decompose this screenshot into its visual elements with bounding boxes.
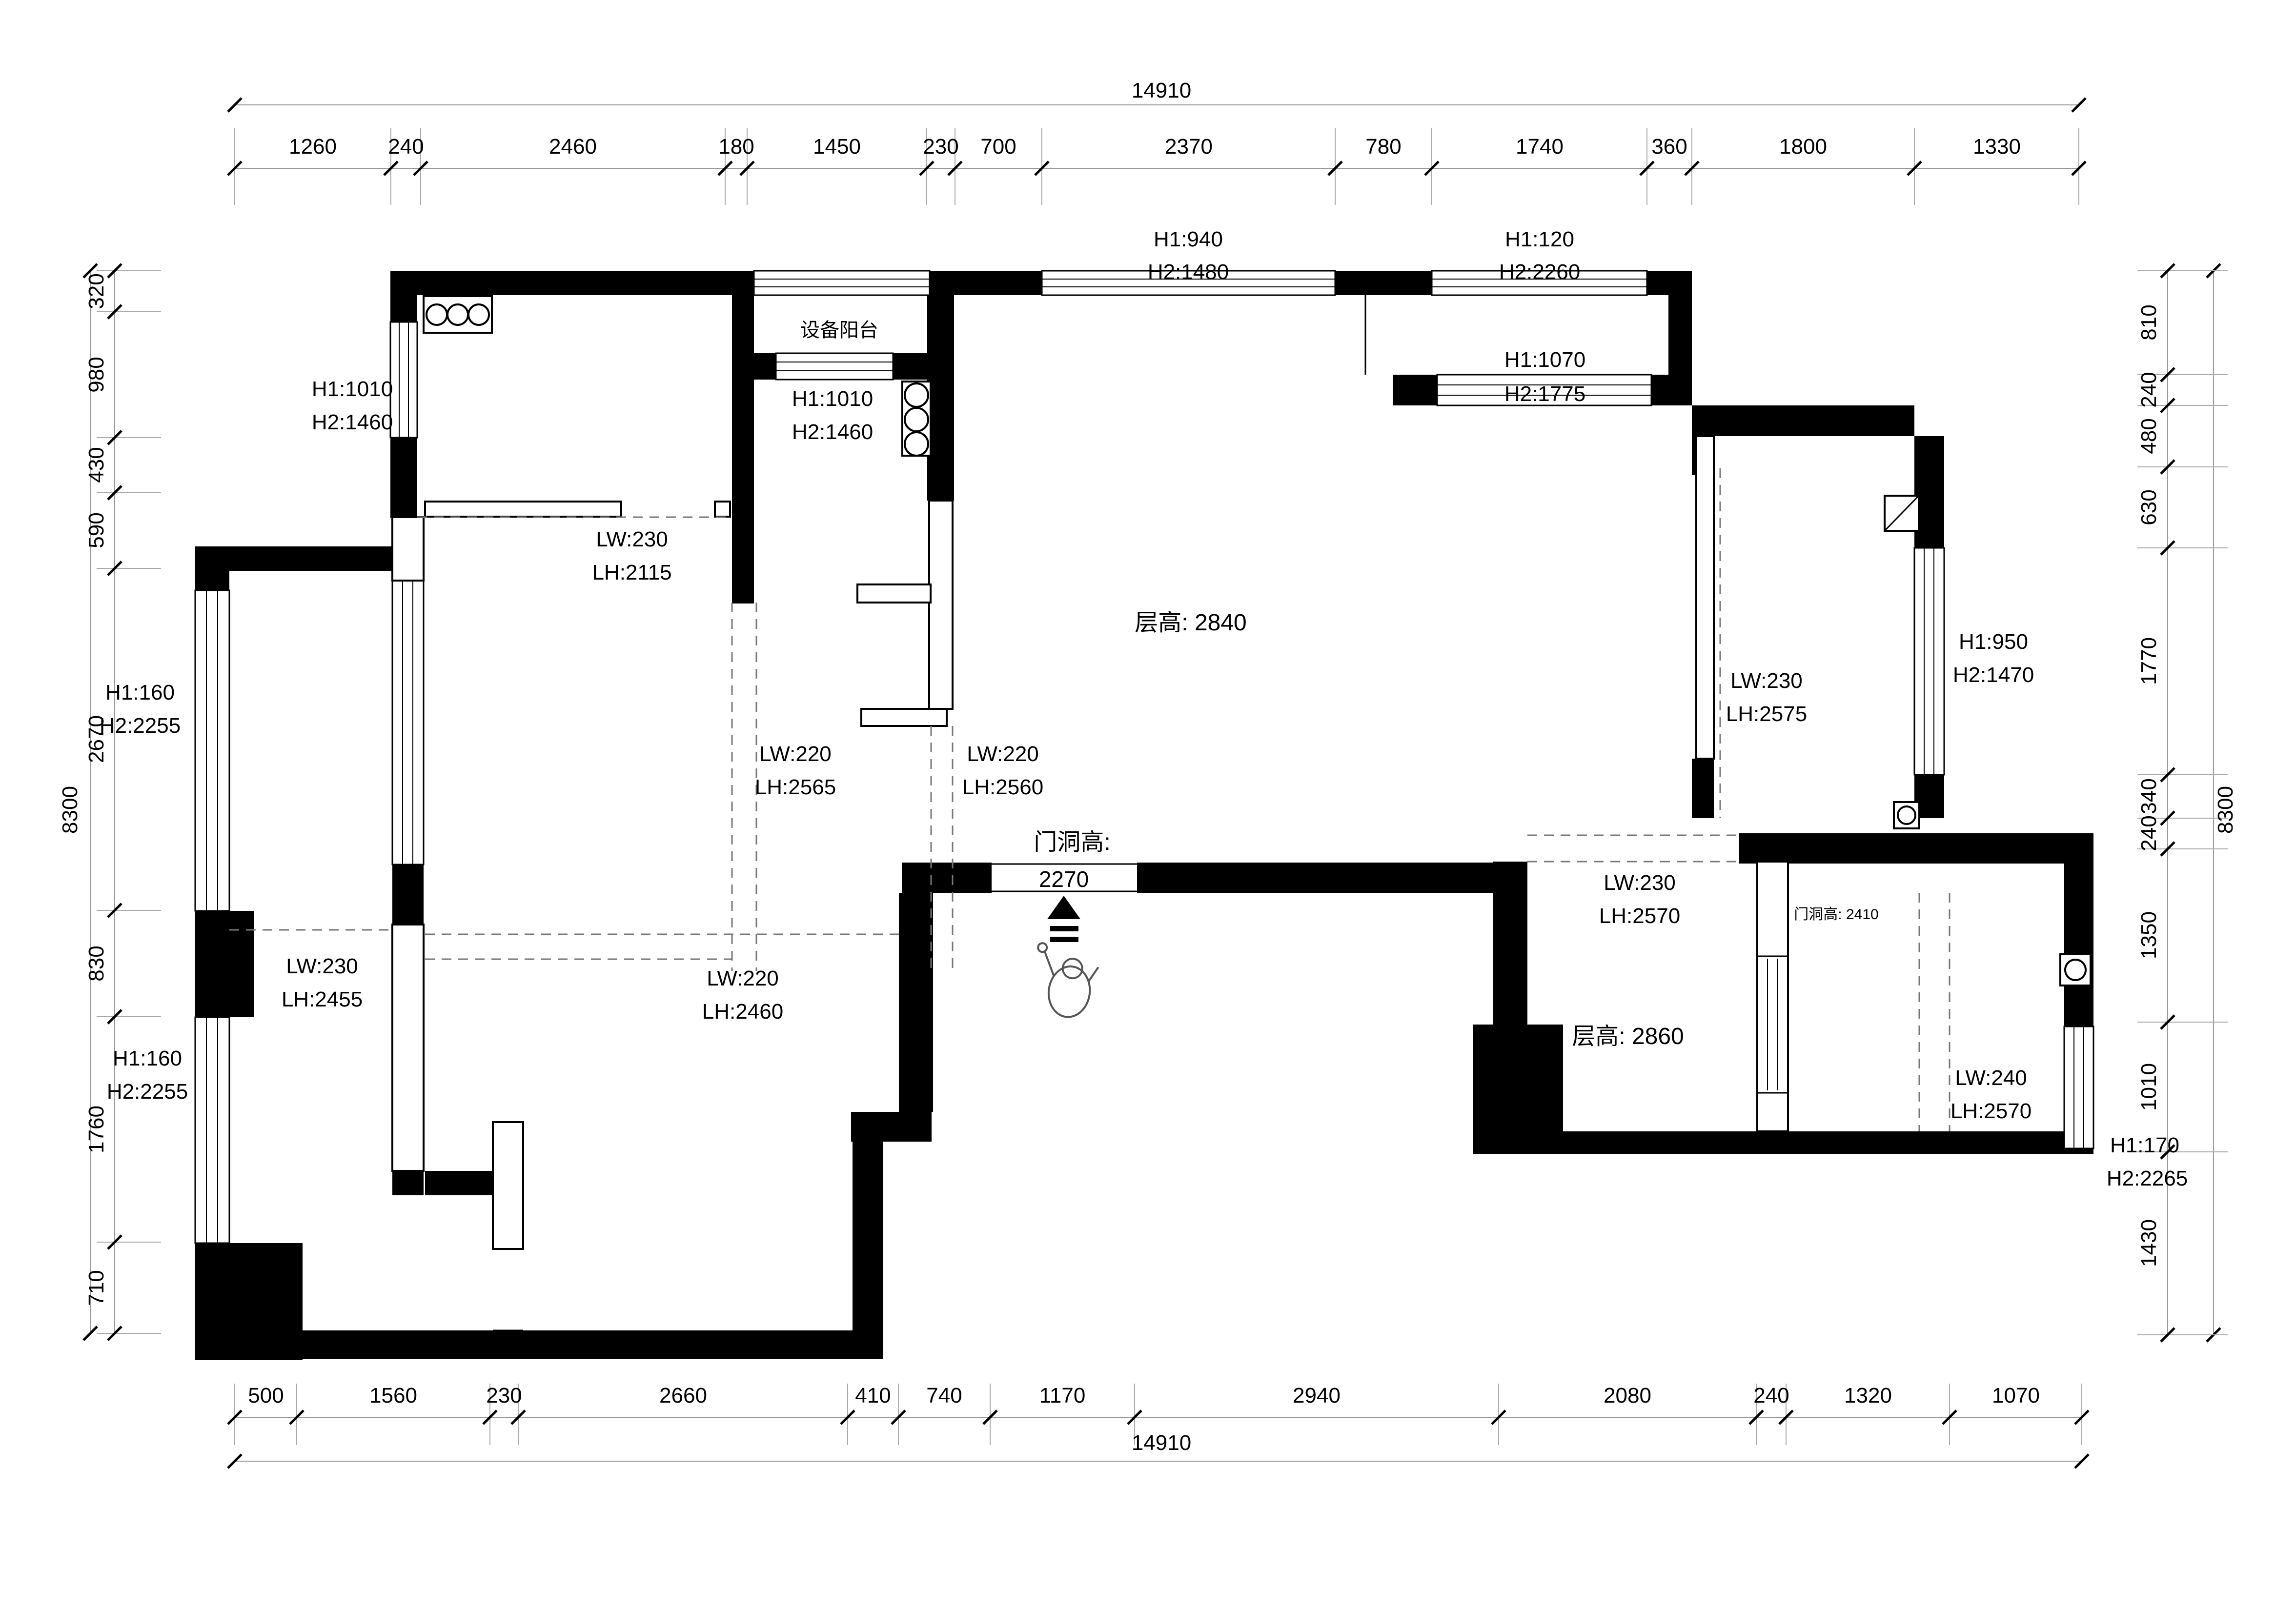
dim-label: 980 [84, 357, 108, 392]
label-h2-2255-upper: H2:2255 [100, 714, 181, 738]
dim-label: 1010 [2137, 1063, 2161, 1111]
dashed-reference-lines [229, 468, 1950, 1131]
hall-partition-lower [392, 925, 424, 1171]
dim-label: 230 [923, 135, 958, 159]
light-partitions [392, 295, 2091, 1330]
bottom-partition [493, 1122, 523, 1330]
label-h2-1460-left: H2:1460 [312, 410, 393, 434]
label-h2-1480: H2:1480 [1148, 260, 1229, 284]
structural-walls [195, 271, 2093, 1360]
label-h2-1460-balcony: H2:1460 [792, 420, 873, 444]
overall-dim-left: 8300 [58, 786, 82, 834]
pipe-symbol-bedroom [1894, 802, 1919, 828]
label-lh-2570-corr: LH:2570 [1599, 904, 1680, 928]
label-lw-220-dining: LW:220 [707, 966, 779, 990]
label-h1-120: H1:120 [1505, 227, 1574, 251]
dim-label: 240 [2137, 815, 2161, 851]
dim-label: 1800 [1779, 135, 1827, 159]
dim-label: 1350 [2137, 911, 2161, 959]
dim-label: 2080 [1604, 1384, 1651, 1408]
label-lh-2570-br: LH:2570 [1951, 1099, 2032, 1123]
dim-label: 410 [855, 1384, 891, 1408]
label-h1-1010-balcony: H1:1010 [792, 387, 873, 411]
dim-label: 2660 [659, 1384, 707, 1408]
label-lh-2460-dining: LH:2460 [702, 1000, 783, 1024]
label-lw-220-b: LW:220 [967, 742, 1039, 766]
right-bedroom-left-partition [1696, 436, 1714, 759]
window-kitchen-left [390, 322, 417, 438]
pantry-partition [857, 501, 953, 726]
dim-label: 240 [2137, 372, 2161, 407]
kitchen-counter [425, 502, 730, 517]
label-lw-230-kitchen: LW:230 [596, 527, 668, 551]
label-h1-1010-left: H1:1010 [312, 377, 393, 401]
dim-label: 500 [248, 1384, 284, 1408]
dim-label: 1170 [1039, 1384, 1086, 1408]
person-figure-icon [1029, 943, 1101, 1020]
dim-label: 180 [718, 135, 754, 159]
dim-label: 780 [1365, 135, 1401, 159]
label-lw-230-blbed: LW:230 [286, 954, 358, 978]
label-h1-160-upper: H1:160 [105, 681, 175, 704]
label-h1-170: H1:170 [2110, 1133, 2179, 1157]
label-lw-240: LW:240 [1955, 1066, 2027, 1090]
label-lh-2575-rbed: LH:2575 [1726, 702, 1807, 726]
dim-label: 480 [2137, 418, 2161, 454]
label-h2-1470: H2:1470 [1953, 663, 2034, 687]
dim-label: 740 [926, 1384, 962, 1408]
overall-dim-bottom: 14910 [1132, 1431, 1191, 1455]
dim-label: 1430 [2137, 1219, 2161, 1267]
dim-label: 240 [1753, 1384, 1789, 1408]
dim-label: 590 [84, 512, 108, 548]
dim-label: 1770 [2137, 637, 2161, 685]
label-lh-2560-b: LH:2560 [962, 775, 1043, 799]
dim-label: 2460 [549, 135, 597, 159]
floor-plan-canvas: 1260240246018014502307002370780174036018… [0, 0, 2296, 1609]
room-label-ceiling-2840: 层高: 2840 [1135, 610, 1246, 636]
dim-label: 810 [2137, 304, 2161, 340]
label-h2-1775: H2:1775 [1504, 382, 1585, 406]
label-h2-2265: H2:2265 [2107, 1167, 2188, 1190]
room-label-ceiling-2860: 层高: 2860 [1572, 1024, 1684, 1049]
dim-label: 1560 [369, 1384, 417, 1408]
label-h1-1070: H1:1070 [1504, 348, 1585, 372]
gas-meter-icon [902, 382, 931, 456]
dim-label: 710 [84, 1270, 108, 1306]
stove-icon [424, 296, 492, 333]
window-balcony-outer [754, 271, 930, 295]
window-balcony-inner [776, 353, 893, 380]
label-door-height-2410: 门洞高: 2410 [1794, 906, 1878, 923]
dim-label: 430 [84, 447, 108, 483]
dim-label: 1330 [1973, 135, 2021, 159]
label-lh-2455-blbed: LH:2455 [282, 987, 363, 1011]
interior-glazed-band [392, 581, 424, 865]
window-left-upper [195, 590, 229, 911]
room-label-equipment-balcony: 设备阳台 [800, 320, 878, 341]
openable-window-symbol [1885, 496, 1919, 531]
overall-dim-right: 8300 [2214, 786, 2237, 834]
overall-dim-top: 14910 [1132, 79, 1191, 102]
label-lw-230-rbed: LW:230 [1730, 669, 1803, 693]
label-lw-230-corr: LW:230 [1604, 871, 1676, 895]
dim-label: 320 [84, 273, 108, 309]
label-lh-2115-kitchen: LH:2115 [592, 561, 671, 584]
dim-label: 1320 [1844, 1384, 1892, 1408]
label-h2-2260: H2:2260 [1499, 260, 1580, 284]
dim-label: 2940 [1293, 1384, 1341, 1408]
dim-label: 2370 [1165, 135, 1213, 159]
label-h2-2255-lower: H2:2255 [107, 1080, 188, 1104]
dim-label: 240 [388, 135, 424, 159]
sliding-partition [1757, 862, 1788, 1131]
pipe-symbol-right [2060, 954, 2091, 986]
label-h1-940: H1:940 [1154, 227, 1223, 251]
label-lh-2565-a: LH:2565 [755, 775, 836, 799]
dim-label: 700 [980, 135, 1016, 159]
dim-label: 830 [84, 945, 108, 981]
window-bottom-right [2064, 1026, 2093, 1148]
dim-label: 1740 [1516, 135, 1564, 159]
label-h1-160-lower: H1:160 [113, 1046, 182, 1070]
dim-label: 630 [2137, 489, 2161, 525]
entry-arrow-icon [1047, 896, 1080, 942]
label-door-height-title: 门洞高: [1034, 829, 1110, 855]
dim-label: 1260 [289, 135, 337, 159]
dim-label: 360 [1651, 135, 1687, 159]
dim-label: 1760 [84, 1106, 108, 1153]
window-right-bedroom [1914, 548, 1944, 775]
dim-label: 230 [486, 1384, 522, 1408]
dim-label: 1450 [813, 135, 861, 159]
dim-label: 340 [2137, 778, 2161, 814]
window-left-lower [195, 1017, 229, 1243]
hall-partition-upper [392, 517, 424, 581]
dim-label: 1070 [1992, 1384, 2040, 1408]
label-door-height-2270: 2270 [1039, 866, 1089, 892]
floor-plan-page: 1260240246018014502307002370780174036018… [0, 0, 2296, 1609]
label-lw-220-a: LW:220 [759, 742, 832, 766]
label-h1-950: H1:950 [1959, 630, 2028, 654]
